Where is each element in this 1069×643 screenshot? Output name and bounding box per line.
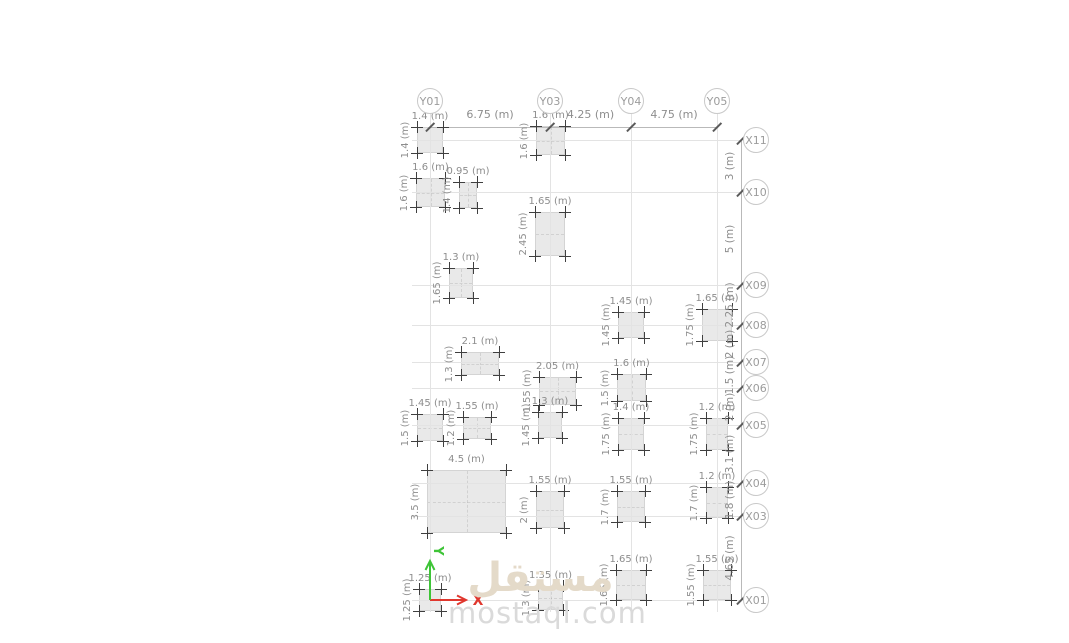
x-axis-label: X: [473, 593, 484, 609]
corner-cross: [611, 485, 623, 497]
corner-cross: [611, 516, 623, 528]
corner-cross: [725, 594, 737, 606]
footing-width-label: 2.1 (m): [462, 337, 499, 347]
grid-bubble-X09[interactable]: X09: [743, 272, 769, 298]
corner-cross: [532, 580, 544, 592]
footing-width-label: 1.55 (m): [529, 476, 572, 486]
right-dimension-label: 4.65 (m): [725, 535, 735, 580]
grid-bubble-Y03[interactable]: Y03: [537, 88, 563, 114]
corner-cross: [558, 485, 570, 497]
grid-bubble-X05[interactable]: X05: [743, 412, 769, 438]
footing-pad-17[interactable]: [427, 470, 506, 533]
corner-cross: [612, 412, 624, 424]
corner-cross: [437, 121, 449, 133]
corner-cross: [558, 522, 570, 534]
corner-cross: [639, 485, 651, 497]
corner-cross: [529, 206, 541, 218]
corner-cross: [421, 464, 433, 476]
corner-cross: [638, 332, 650, 344]
corner-cross: [610, 564, 622, 576]
corner-cross: [453, 176, 465, 188]
corner-cross: [638, 306, 650, 318]
x-axis-arrow: X: [430, 593, 484, 609]
right-dimension-label: 5 (m): [725, 224, 735, 252]
footing-width-label: 1.3 (m): [532, 397, 569, 407]
footing-height-label: 1.75 (m): [686, 304, 696, 347]
footing-height-label: 1.75 (m): [690, 413, 700, 456]
footing-width-label: 2.05 (m): [536, 362, 579, 372]
footing-height-label: 3.5 (m): [411, 483, 421, 520]
corner-cross: [437, 147, 449, 159]
grid-line-Y05: [717, 114, 718, 612]
corner-cross: [557, 604, 569, 616]
corner-cross: [453, 202, 465, 214]
corner-cross: [471, 176, 483, 188]
grid-bubble-Y01[interactable]: Y01: [417, 88, 443, 114]
corner-cross: [638, 412, 650, 424]
corner-cross: [559, 250, 571, 262]
grid-bubble-X03[interactable]: X03: [743, 503, 769, 529]
corner-cross: [485, 411, 497, 423]
corner-cross: [493, 346, 505, 358]
corner-cross: [557, 580, 569, 592]
footing-height-label: 1.5 (m): [601, 369, 611, 406]
corner-cross: [638, 444, 650, 456]
top-dimension-label: 6.75 (m): [466, 110, 513, 120]
corner-cross: [640, 368, 652, 380]
grid-line-X09: [412, 285, 741, 286]
corner-cross: [570, 399, 582, 411]
footing-width-label: 1.55 (m): [610, 476, 653, 486]
right-dimension-label: 2.25 (m): [725, 282, 735, 327]
right-dimension-chain: [741, 140, 742, 600]
corner-cross: [612, 306, 624, 318]
corner-cross: [700, 481, 712, 493]
footing-height-label: 1.65 (m): [433, 262, 443, 305]
corner-cross: [640, 594, 652, 606]
corner-cross: [532, 406, 544, 418]
footing-height-label: 1.65 (m): [600, 564, 610, 607]
footing-height-label: 1.45 (m): [602, 304, 612, 347]
footing-width-label: 1.45 (m): [610, 297, 653, 307]
footing-width-label: 1.65 (m): [610, 555, 653, 565]
corner-cross: [530, 120, 542, 132]
footing-height-label: 1.7 (m): [601, 488, 611, 525]
corner-cross: [559, 149, 571, 161]
corner-cross: [533, 371, 545, 383]
corner-cross: [411, 121, 423, 133]
corner-cross: [559, 120, 571, 132]
corner-cross: [570, 371, 582, 383]
corner-cross: [697, 594, 709, 606]
right-dimension-label: 1.5 (m): [725, 356, 735, 394]
footing-width-label: 1.35 (m): [529, 571, 572, 581]
footing-width-label: 1.45 (m): [409, 399, 452, 409]
corner-cross: [612, 444, 624, 456]
footing-height-label: 1.3 (m): [522, 580, 532, 617]
footing-height-label: 1.45 (m): [522, 404, 532, 447]
corner-cross: [700, 512, 712, 524]
grid-bubble-Y04[interactable]: Y04: [618, 88, 644, 114]
footing-height-label: 1.4 (m): [401, 122, 411, 159]
corner-cross: [530, 149, 542, 161]
footing-width-label: 1.6 (m): [613, 359, 650, 369]
grid-line-X11: [412, 140, 741, 141]
corner-cross: [556, 432, 568, 444]
corner-cross: [611, 368, 623, 380]
top-dimension-label: 4.75 (m): [650, 110, 697, 120]
corner-cross: [697, 564, 709, 576]
corner-cross: [610, 594, 622, 606]
corner-cross: [410, 172, 422, 184]
corner-cross: [411, 435, 423, 447]
right-dimension-label: 2 (m): [725, 392, 735, 420]
corner-cross: [467, 262, 479, 274]
corner-cross: [559, 206, 571, 218]
corner-cross: [411, 408, 423, 420]
corner-cross: [471, 202, 483, 214]
grid-bubble-X06[interactable]: X06: [743, 375, 769, 401]
corner-cross: [532, 604, 544, 616]
footing-width-label: 1.4 (m): [613, 403, 650, 413]
right-dimension-label: 3 (m): [725, 152, 735, 180]
grid-bubble-X08[interactable]: X08: [743, 312, 769, 338]
corner-cross: [410, 201, 422, 213]
corner-cross: [467, 292, 479, 304]
corner-cross: [556, 406, 568, 418]
right-dimension-label: 3.1 (m): [725, 435, 735, 473]
footing-width-label: 4.5 (m): [448, 455, 485, 465]
y-axis-arrow: Y: [426, 545, 446, 600]
footing-height-label: 2.45 (m): [519, 213, 529, 256]
corner-cross: [455, 369, 467, 381]
corner-cross: [457, 411, 469, 423]
corner-cross: [443, 262, 455, 274]
corner-cross: [529, 250, 541, 262]
footing-height-label: 1.6 (m): [400, 174, 410, 211]
corner-cross: [696, 303, 708, 315]
y-axis-label: Y: [430, 545, 445, 556]
grid-line-X06: [412, 388, 741, 389]
footing-width-label: 1.55 (m): [456, 402, 499, 412]
corner-cross: [457, 433, 469, 445]
corner-cross: [500, 527, 512, 539]
footing-width-label: 1.3 (m): [443, 253, 480, 263]
top-dimension-label: 4.25 (m): [567, 110, 614, 120]
grid-bubble-X07[interactable]: X07: [743, 349, 769, 375]
footing-height-label: 1.6 (m): [520, 122, 530, 159]
top-dimension-chain: [430, 127, 717, 128]
grid-bubble-X10[interactable]: X10: [743, 179, 769, 205]
corner-cross: [485, 433, 497, 445]
corner-cross: [696, 335, 708, 347]
corner-cross: [700, 444, 712, 456]
footing-width-label: 1.6 (m): [412, 163, 449, 173]
footing-height-label: 1.3 (m): [445, 345, 455, 382]
corner-cross: [500, 464, 512, 476]
footing-height-label: 1.55 (m): [687, 564, 697, 607]
corner-cross: [639, 516, 651, 528]
grid-bubble-Y05[interactable]: Y05: [704, 88, 730, 114]
plan-canvas: X Y مستقل mostaql.com 1.4 (m)1.4 (m)1.6 …: [0, 0, 1069, 643]
corner-cross: [612, 332, 624, 344]
footing-height-label: 1.7 (m): [690, 484, 700, 521]
corner-cross: [411, 147, 423, 159]
grid-bubble-X01[interactable]: X01: [743, 587, 769, 613]
grid-bubble-X04[interactable]: X04: [743, 470, 769, 496]
grid-bubble-X11[interactable]: X11: [743, 127, 769, 153]
footing-height-label: 1.4 (m): [443, 177, 453, 214]
footing-width-label: 1.65 (m): [529, 197, 572, 207]
corner-cross: [493, 369, 505, 381]
corner-cross: [530, 522, 542, 534]
corner-cross: [530, 485, 542, 497]
corner-cross: [443, 292, 455, 304]
grid-line-X10: [412, 192, 741, 193]
footing-height-label: 1.75 (m): [602, 413, 612, 456]
corner-cross: [700, 412, 712, 424]
right-dimension-label: 1.8 (m): [725, 480, 735, 518]
footing-height-label: 2 (m): [520, 496, 530, 523]
right-dimension-label: 2 (m): [725, 329, 735, 357]
corner-cross: [532, 432, 544, 444]
axis-triad: X Y: [385, 525, 500, 617]
corner-cross: [455, 346, 467, 358]
corner-cross: [640, 564, 652, 576]
footing-height-label: 1.5 (m): [401, 409, 411, 446]
footing-height-label: 1.2 (m): [447, 410, 457, 447]
